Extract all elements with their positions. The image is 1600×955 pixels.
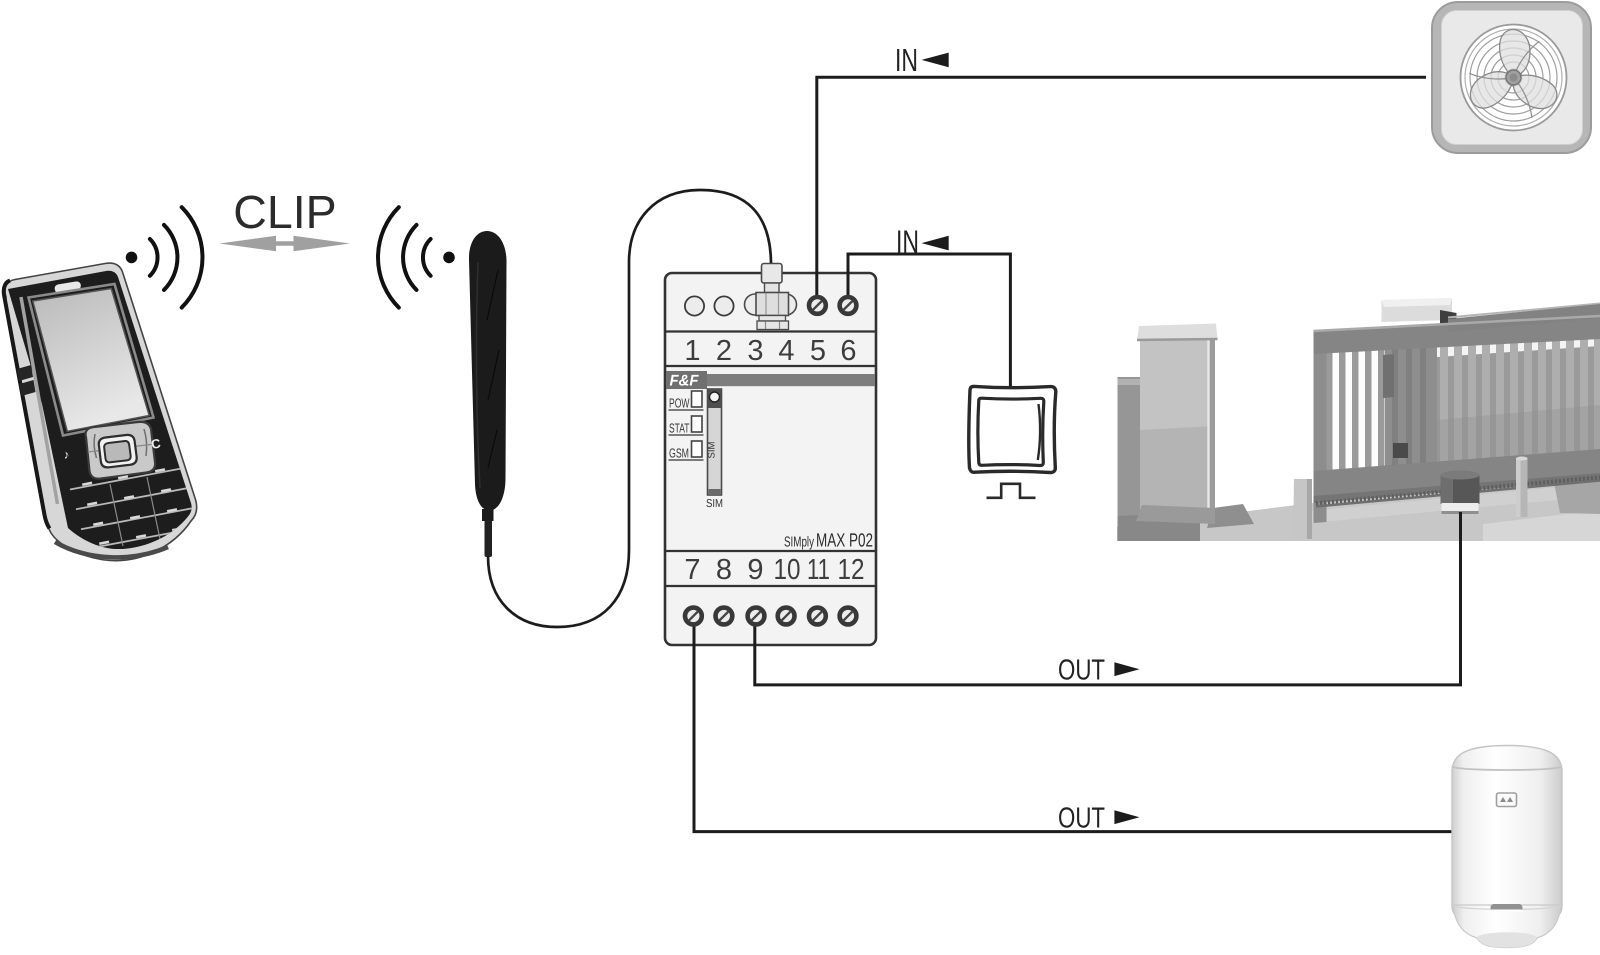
svg-text:POW: POW [669, 396, 690, 411]
svg-text:6: 6 [840, 335, 856, 367]
svg-text:MAX P02: MAX P02 [816, 531, 873, 552]
svg-text:3: 3 [747, 335, 763, 367]
svg-text:2: 2 [716, 335, 732, 367]
svg-text:10: 10 [774, 554, 801, 586]
svg-text:5: 5 [810, 335, 826, 367]
svg-text:4: 4 [778, 335, 794, 367]
svg-text:7: 7 [684, 554, 700, 586]
svg-text:STAT: STAT [669, 421, 690, 436]
svg-text:F&F: F&F [670, 373, 700, 390]
svg-text:9: 9 [747, 554, 763, 586]
svg-text:12: 12 [838, 554, 865, 586]
svg-text:SIMply: SIMply [784, 535, 814, 551]
svg-text:GSM: GSM [669, 446, 689, 461]
svg-text:8: 8 [716, 554, 732, 586]
svg-text:IN: IN [895, 42, 918, 78]
svg-text:IN: IN [896, 224, 919, 260]
svg-text:1: 1 [684, 335, 700, 367]
svg-text:11: 11 [807, 554, 830, 586]
svg-text:SIM: SIM [707, 441, 718, 458]
svg-text:OUT: OUT [1058, 803, 1105, 835]
svg-text:SIM: SIM [706, 498, 723, 510]
svg-text:CLIP: CLIP [233, 186, 336, 238]
svg-text:OUT: OUT [1058, 655, 1105, 687]
